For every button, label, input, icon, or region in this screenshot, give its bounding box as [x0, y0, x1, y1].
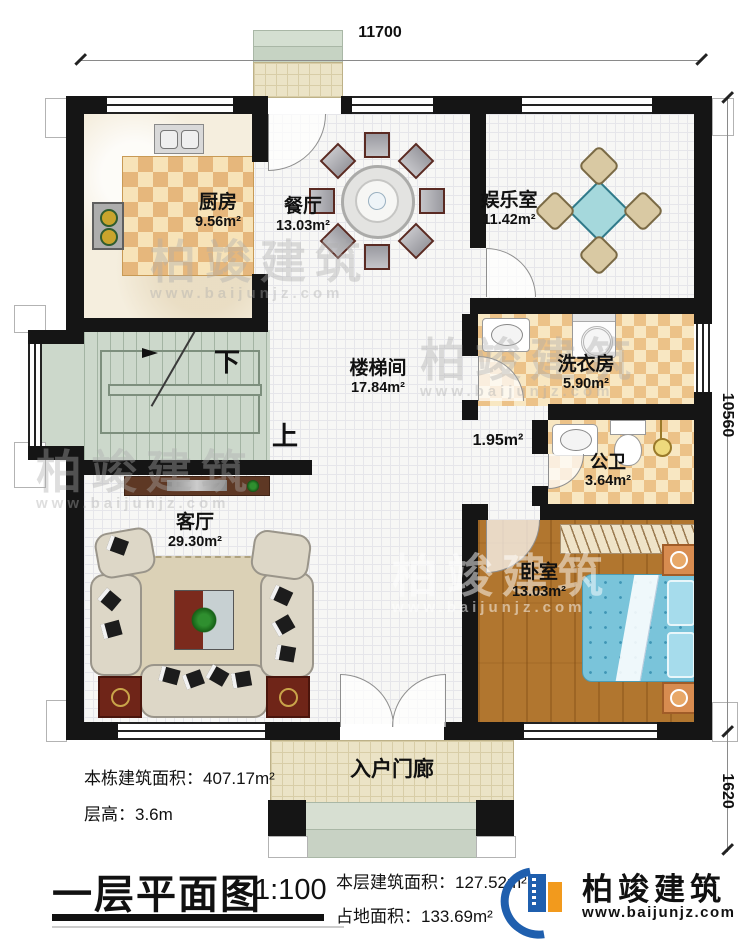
wall-segment — [694, 96, 712, 324]
room-name: 公卫 — [576, 452, 640, 473]
room-name: 楼梯间 — [330, 358, 426, 380]
pillow-blue — [667, 580, 695, 626]
room-label-dining: 餐厅 13.03m² — [258, 196, 348, 235]
wall-segment — [532, 486, 548, 506]
pillar-base — [476, 836, 516, 858]
room-label-porch: 入户门廊 — [330, 758, 454, 782]
window — [352, 96, 433, 114]
window-sill — [14, 305, 46, 333]
burner — [100, 228, 118, 246]
stair-bay-floor — [42, 344, 84, 446]
stove — [92, 202, 124, 250]
room-name: 厨房 — [168, 192, 268, 214]
back-porch-floor — [253, 62, 343, 98]
toilet-tank — [610, 420, 646, 435]
nightstand-lamp — [670, 551, 688, 569]
room-area: 9.56m² — [168, 214, 268, 231]
room-area: 1.95m² — [458, 432, 538, 450]
watermark-url: www.baijunjz.com — [150, 286, 370, 302]
floor-plan: 下 上 — [0, 0, 750, 940]
building-area-value: 407.17m² — [203, 769, 275, 788]
washer-panel — [573, 313, 615, 322]
room-name: 卧室 — [496, 562, 582, 584]
room-name: 娱乐室 — [462, 190, 556, 212]
wall-segment — [66, 722, 118, 740]
stair-up-label: 上 — [272, 416, 298, 453]
room-label-bathroom: 公卫 3.64m² — [576, 452, 640, 489]
room-area: 13.03m² — [258, 218, 348, 235]
side-table — [98, 676, 142, 718]
footprint-line: 占地面积：133.69m² — [336, 902, 493, 927]
burner — [100, 209, 118, 227]
room-label-living: 客厅 29.30m² — [150, 512, 240, 551]
pillow-blue — [667, 632, 695, 678]
porch-pillar — [476, 800, 514, 836]
room-label-entertainment: 娱乐室 11.42m² — [462, 190, 556, 229]
watermark-url: www.baijunjz.com — [392, 600, 612, 616]
room-area: 29.30m² — [150, 534, 240, 551]
plant — [190, 606, 218, 634]
table-lamp — [111, 688, 130, 707]
room-label-kitchen: 厨房 9.56m² — [168, 192, 268, 231]
blanket — [616, 575, 660, 681]
room-label-laundry: 洗衣房 5.90m² — [538, 354, 634, 393]
wall-segment — [694, 392, 712, 740]
dimension-right-main: 10560 — [718, 385, 736, 445]
room-name: 入户门廊 — [330, 758, 454, 782]
wall-segment — [233, 96, 268, 114]
nightstand — [662, 544, 696, 576]
lazy-susan — [368, 192, 386, 210]
stair-direction-arrow — [142, 348, 158, 358]
logo-building-windows — [532, 878, 536, 906]
room-label-stairwell: 楼梯间 17.84m² — [330, 358, 426, 397]
room-label-bedroom: 卧室 13.03m² — [496, 562, 582, 601]
wall-segment — [462, 400, 478, 420]
dining-chair — [364, 132, 390, 158]
dimension-line-right — [727, 98, 728, 852]
bay-wall — [28, 330, 84, 344]
room-name: 餐厅 — [258, 196, 348, 218]
wall-segment — [252, 114, 268, 162]
dining-table — [341, 165, 415, 239]
dimension-right-porch: 1620 — [718, 764, 736, 818]
plan-title: 一层平面图 — [52, 862, 262, 920]
logo-building-icon — [528, 874, 546, 912]
logo-building-icon — [548, 882, 562, 912]
window — [118, 722, 265, 740]
building-area-label: 本栋建筑面积： — [84, 769, 203, 788]
watermark-text: 柏竣建筑 — [150, 238, 370, 286]
window-sill — [45, 98, 67, 138]
sink-basin — [160, 130, 178, 149]
room-name: 洗衣房 — [538, 354, 634, 376]
brand-name: 柏竣建筑 — [582, 864, 726, 909]
wall-segment — [462, 504, 488, 520]
room-area: 11.42m² — [462, 212, 556, 229]
bay-window — [28, 344, 42, 446]
shower-head — [653, 438, 672, 457]
chaise-corner — [249, 528, 313, 582]
footprint-value: 133.69m² — [421, 907, 493, 926]
floor-height-value: 3.6m — [135, 805, 173, 824]
entry-step — [300, 802, 482, 831]
title-underline-thin — [52, 926, 344, 928]
watermark-text: 柏竣建筑 — [36, 448, 256, 496]
plan-scale: 1:100 — [254, 874, 327, 907]
pillow — [275, 644, 296, 662]
wall-segment — [548, 404, 712, 420]
footprint-label: 占地面积： — [336, 907, 421, 926]
wall-segment — [341, 96, 352, 114]
porch-pillar — [268, 800, 306, 836]
nightstand-lamp — [670, 689, 688, 707]
floor-height-line: 层高：3.6m — [84, 800, 173, 825]
wall-segment — [444, 722, 524, 740]
building-area-line: 本栋建筑面积：407.17m² — [84, 764, 275, 789]
room-area: 13.03m² — [496, 584, 582, 601]
entry-step — [300, 829, 482, 858]
window-sill — [712, 98, 734, 136]
watermark: 柏竣建筑 www.baijunjz.com — [36, 448, 256, 512]
wall-segment — [66, 96, 84, 332]
wall-segment — [265, 722, 340, 740]
room-name: 客厅 — [150, 512, 240, 534]
dining-chair — [419, 188, 445, 214]
brand-logo: 柏竣建筑 www.baijunjz.com — [498, 858, 748, 938]
room-area: 17.84m² — [330, 380, 426, 397]
brand-website: www.baijunjz.com — [582, 904, 735, 921]
side-table — [266, 676, 310, 718]
title-underline — [52, 914, 324, 921]
watermark-url: www.baijunjz.com — [36, 496, 256, 512]
floor-height-label: 层高： — [84, 805, 135, 824]
sink-bowl — [560, 429, 592, 451]
sink-basin — [181, 130, 199, 149]
stair-down-label: 下 — [214, 342, 240, 379]
floor-area-label: 本层建筑面积： — [336, 873, 455, 892]
wall-segment — [84, 318, 268, 332]
coffee-table — [174, 590, 234, 650]
window — [522, 96, 652, 114]
wall-segment — [470, 298, 712, 314]
room-area: 3.64m² — [576, 473, 640, 490]
wall-segment — [433, 96, 522, 114]
wall-segment — [540, 504, 712, 520]
window — [696, 324, 710, 392]
window — [524, 722, 657, 740]
watermark: 柏竣建筑 www.baijunjz.com — [150, 238, 370, 302]
stair-center-rail — [108, 384, 262, 396]
kitchen-sink — [154, 124, 204, 154]
room-label-corridor: 1.95m² — [458, 432, 538, 450]
window-sill — [712, 702, 738, 742]
nightstand — [662, 682, 696, 714]
window — [107, 96, 233, 114]
dimension-top: 11700 — [340, 24, 420, 42]
dimension-line-top — [80, 60, 702, 61]
room-area: 5.90m² — [538, 376, 634, 393]
window-sill — [46, 700, 67, 742]
table-lamp — [279, 688, 298, 707]
pillar-base — [268, 836, 308, 858]
